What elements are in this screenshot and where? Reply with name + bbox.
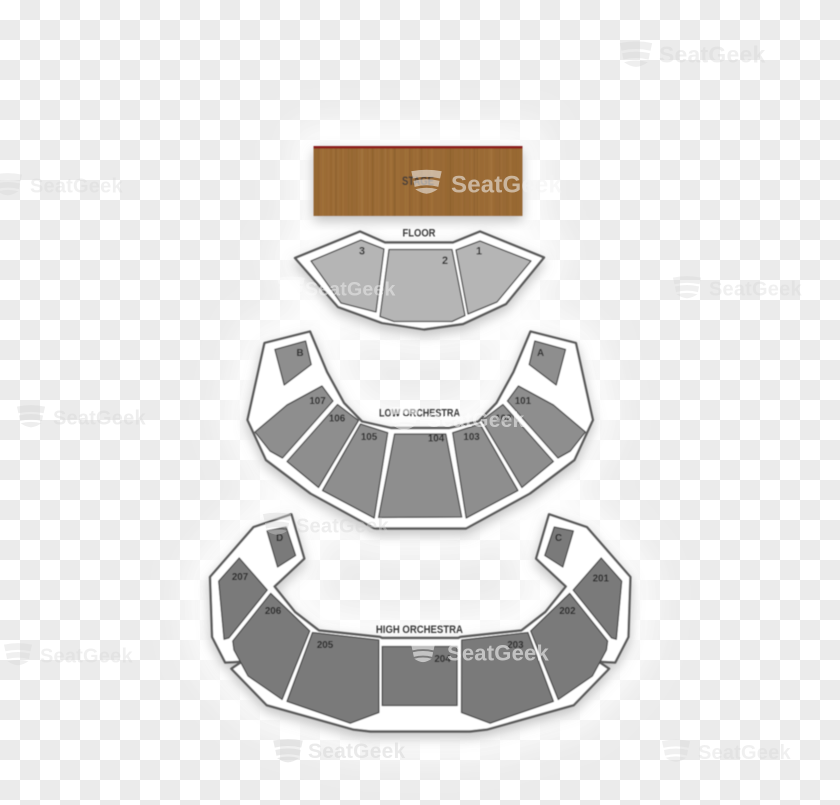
svg-text:201: 201 xyxy=(593,574,610,585)
svg-text:SeatGeek: SeatGeek xyxy=(447,641,549,666)
svg-text:SeatGeek: SeatGeek xyxy=(698,742,791,764)
svg-text:A: A xyxy=(537,348,544,359)
svg-text:SeatGeek: SeatGeek xyxy=(308,740,405,763)
svg-text:SeatGeek: SeatGeek xyxy=(451,172,562,199)
svg-text:2: 2 xyxy=(442,255,448,267)
svg-text:HIGH ORCHESTRA: HIGH ORCHESTRA xyxy=(376,624,463,636)
svg-text:202: 202 xyxy=(559,606,576,617)
svg-text:101: 101 xyxy=(515,396,532,407)
svg-text:103: 103 xyxy=(463,432,480,443)
svg-text:SeatGeek: SeatGeek xyxy=(427,409,524,432)
svg-text:3: 3 xyxy=(359,246,365,258)
svg-text:C: C xyxy=(555,533,562,544)
svg-text:SeatGeek: SeatGeek xyxy=(296,516,389,538)
svg-text:SeatGeek: SeatGeek xyxy=(659,42,765,68)
svg-text:105: 105 xyxy=(361,432,378,443)
svg-text:B: B xyxy=(296,348,303,359)
svg-text:1: 1 xyxy=(476,246,482,258)
svg-text:SeatGeek: SeatGeek xyxy=(30,176,123,198)
svg-text:SeatGeek: SeatGeek xyxy=(53,408,146,430)
svg-text:207: 207 xyxy=(232,572,249,583)
svg-text:SeatGeek: SeatGeek xyxy=(709,279,802,301)
svg-text:205: 205 xyxy=(317,640,334,651)
svg-text:SeatGeek: SeatGeek xyxy=(40,646,133,668)
svg-text:107: 107 xyxy=(309,396,326,407)
svg-text:106: 106 xyxy=(329,414,346,425)
svg-text:FLOOR: FLOOR xyxy=(403,228,436,240)
svg-text:SeatGeek: SeatGeek xyxy=(305,279,396,301)
svg-text:206: 206 xyxy=(265,606,282,617)
svg-text:104: 104 xyxy=(428,434,445,445)
